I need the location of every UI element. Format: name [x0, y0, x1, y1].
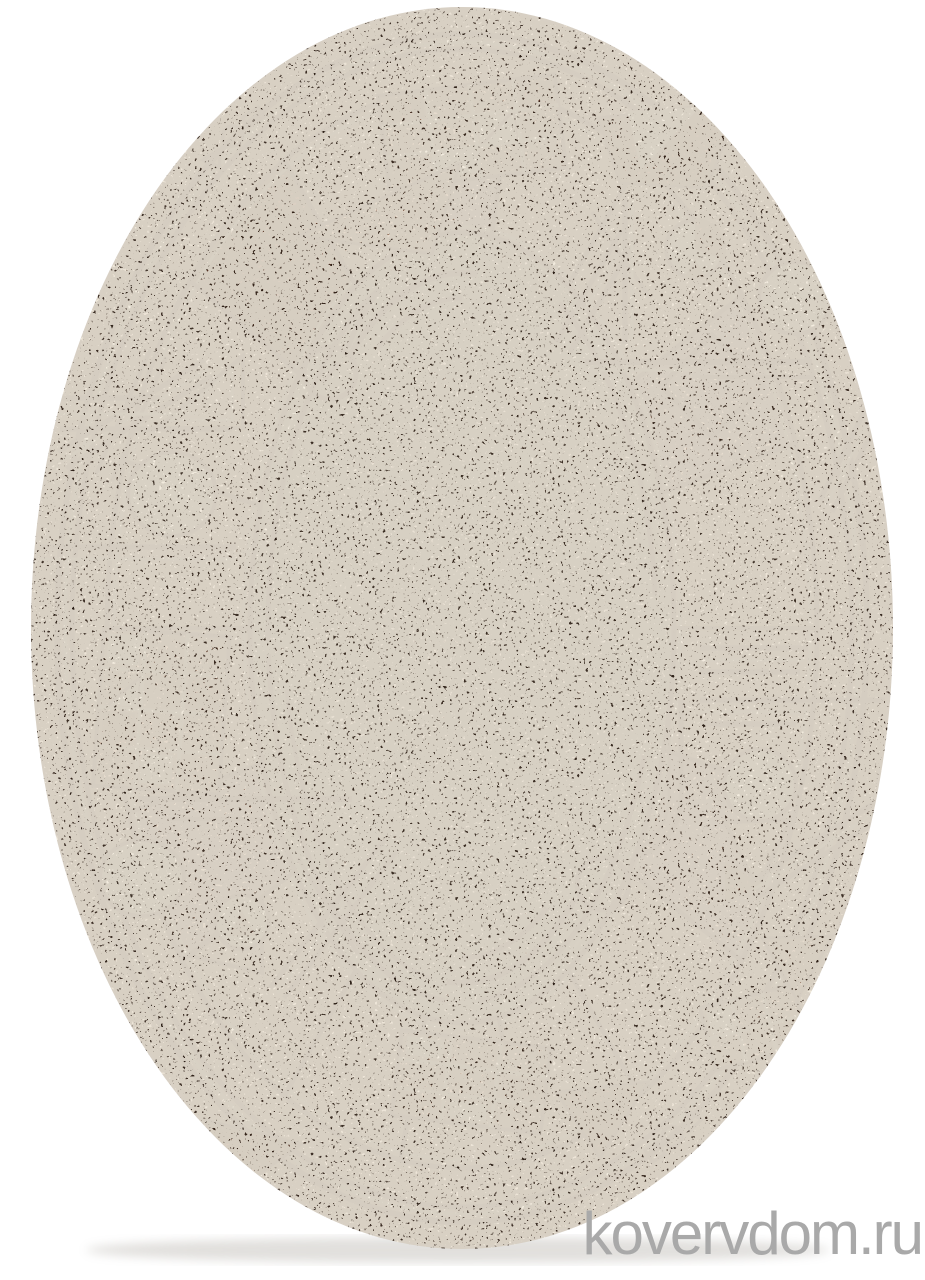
rug — [31, 7, 893, 1249]
rug-image — [0, 0, 925, 1280]
watermark-text: kovervdom.ru — [583, 1204, 922, 1264]
product-photo: kovervdom.ru — [0, 0, 925, 1280]
